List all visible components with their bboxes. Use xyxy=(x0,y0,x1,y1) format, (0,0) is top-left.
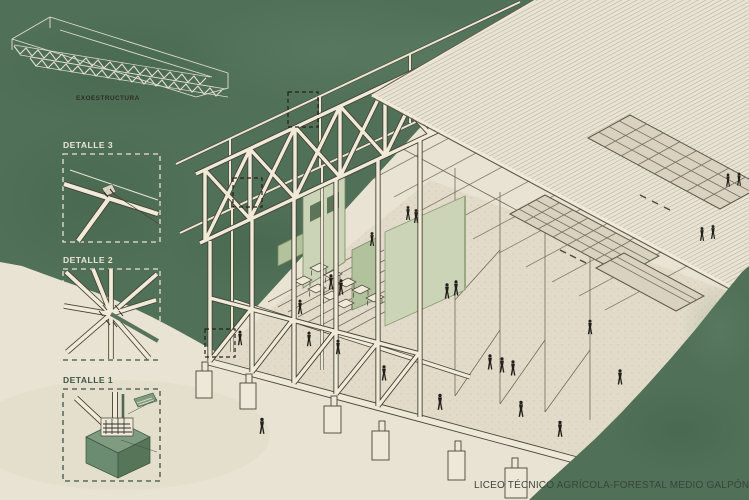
detail-1-label: DETALLE 1 xyxy=(63,375,113,385)
exostructure-label: EXOESTRUCTURA xyxy=(76,95,140,102)
detail-3-label: DETALLE 3 xyxy=(63,140,113,150)
drawing-title: LICEO TÉCNICO AGRÍCOLA-FORESTAL MEDIO GA… xyxy=(474,478,749,491)
detail-2-label: DETALLE 2 xyxy=(63,255,113,265)
architectural-drawing-poster: EXOESTRUCTURA DETALLE 3 DETALLE 2 DETALL… xyxy=(0,0,749,500)
axonometric-drawing-canvas: EXOESTRUCTURA DETALLE 3 DETALLE 2 DETALL… xyxy=(0,0,749,500)
